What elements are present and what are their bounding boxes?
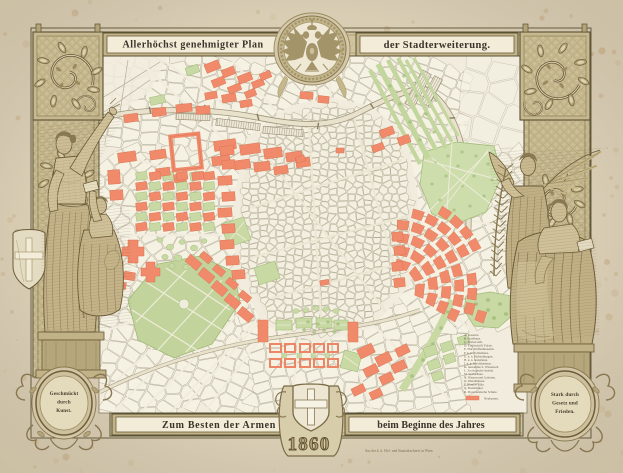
svg-text:Allerhöchst genehmigter Plan: Allerhöchst genehmigter Plan xyxy=(122,40,263,51)
svg-text:der Stadterweiterung.: der Stadterweiterung. xyxy=(384,40,491,51)
svg-text:Frieden.: Frieden. xyxy=(555,410,575,415)
svg-text:R. Protestantische Schule.: R. Protestantische Schule. xyxy=(464,390,497,394)
svg-text:durch: durch xyxy=(57,401,71,406)
svg-text:Neubauten.: Neubauten. xyxy=(484,397,499,401)
svg-text:Gesetz und: Gesetz und xyxy=(552,402,578,407)
svg-text:Stark durch: Stark durch xyxy=(551,393,579,398)
svg-text:Kunst.: Kunst. xyxy=(56,409,72,414)
svg-text:beim Beginne des Jahres: beim Beginne des Jahres xyxy=(377,420,484,431)
svg-text:Geschmückt: Geschmückt xyxy=(50,392,79,397)
svg-text:Zum Besten der Armen: Zum Besten der Armen xyxy=(162,420,276,431)
svg-text:1860: 1860 xyxy=(288,434,331,455)
svg-text:Aus der k. k. Hof- und Staatsd: Aus der k. k. Hof- und Staatsdruckerei i… xyxy=(365,449,434,453)
